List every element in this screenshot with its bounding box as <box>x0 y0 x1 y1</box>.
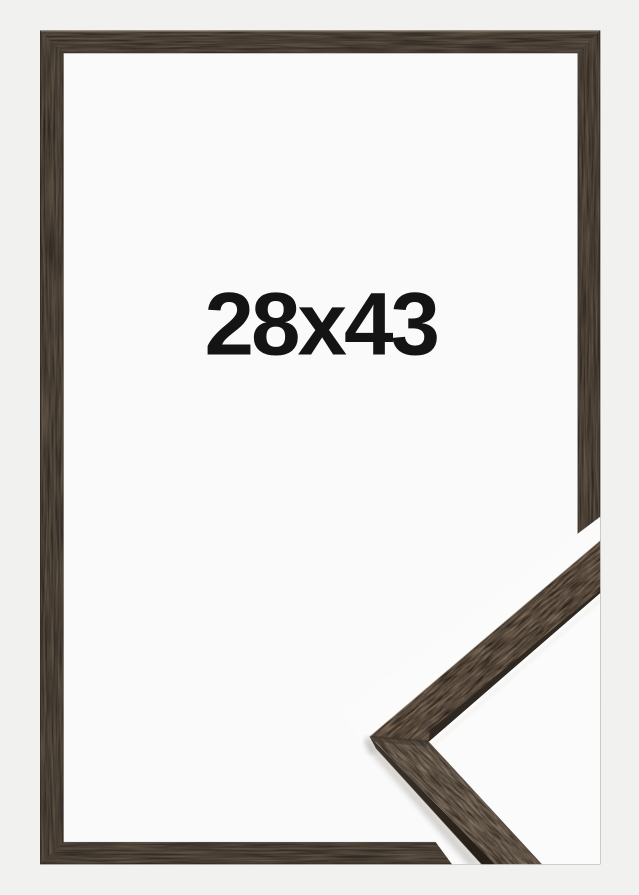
svg-text:28x43: 28x43 <box>205 273 438 373</box>
